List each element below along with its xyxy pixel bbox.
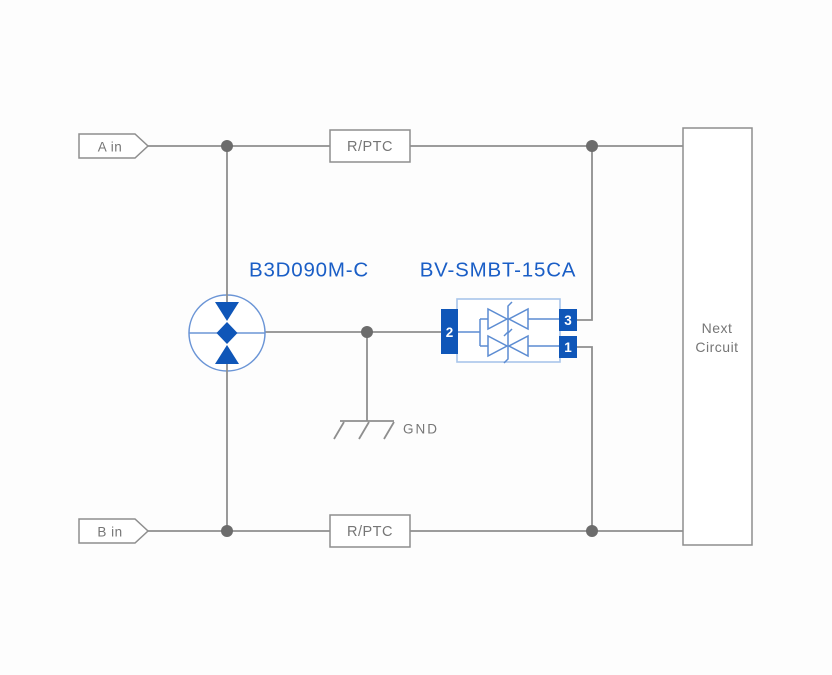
junction-dot-b-gdt xyxy=(221,525,233,537)
resistor-rptc-top: R/PTC xyxy=(330,130,410,162)
tvs-part-number-label: BV-SMBT-15CA xyxy=(420,259,577,282)
rptc-bottom-label: R/PTC xyxy=(347,524,393,540)
gnd-label: GND xyxy=(403,422,439,437)
next-circuit-box xyxy=(683,128,752,545)
wire-pin3-to-a-rail xyxy=(577,146,592,320)
next-circuit-label-line1: Next xyxy=(702,320,733,336)
rptc-top-label: R/PTC xyxy=(347,139,393,155)
tvs-pin-3-number: 3 xyxy=(564,313,572,328)
circuit-diagram-canvas: A in B in R/PTC R/PTC Next Circuit xyxy=(0,0,832,675)
junction-dot-gnd-tap xyxy=(361,326,373,338)
resistor-rptc-bottom: R/PTC xyxy=(330,515,410,547)
junction-dot-a-gdt xyxy=(221,140,233,152)
tvs-pin-2: 2 xyxy=(441,309,458,354)
next-circuit-block: Next Circuit xyxy=(683,128,752,545)
gdt-symbol xyxy=(189,146,265,531)
tvs-pin-1-number: 1 xyxy=(564,340,572,355)
input-connector-a: A in xyxy=(79,134,148,158)
input-b-label: B in xyxy=(97,525,122,540)
tvs-pin-2-number: 2 xyxy=(446,325,454,340)
tvs-symbol: 2 3 1 xyxy=(441,299,577,363)
junction-dot-b-pin1 xyxy=(586,525,598,537)
gnd-symbol: GND xyxy=(334,421,439,439)
gnd-hatch-icon xyxy=(334,422,394,439)
tvs-pin-3: 3 xyxy=(559,309,577,331)
tvs-pin-1: 1 xyxy=(559,336,577,358)
junction-dot-a-pin3 xyxy=(586,140,598,152)
wire-pin1-to-b-rail xyxy=(577,347,592,531)
input-connector-b: B in xyxy=(79,519,148,543)
circuit-diagram: A in B in R/PTC R/PTC Next Circuit xyxy=(0,0,832,675)
gdt-part-number-label: B3D090M-C xyxy=(249,259,369,282)
input-a-label: A in xyxy=(98,140,123,155)
next-circuit-label-line2: Circuit xyxy=(695,339,738,355)
